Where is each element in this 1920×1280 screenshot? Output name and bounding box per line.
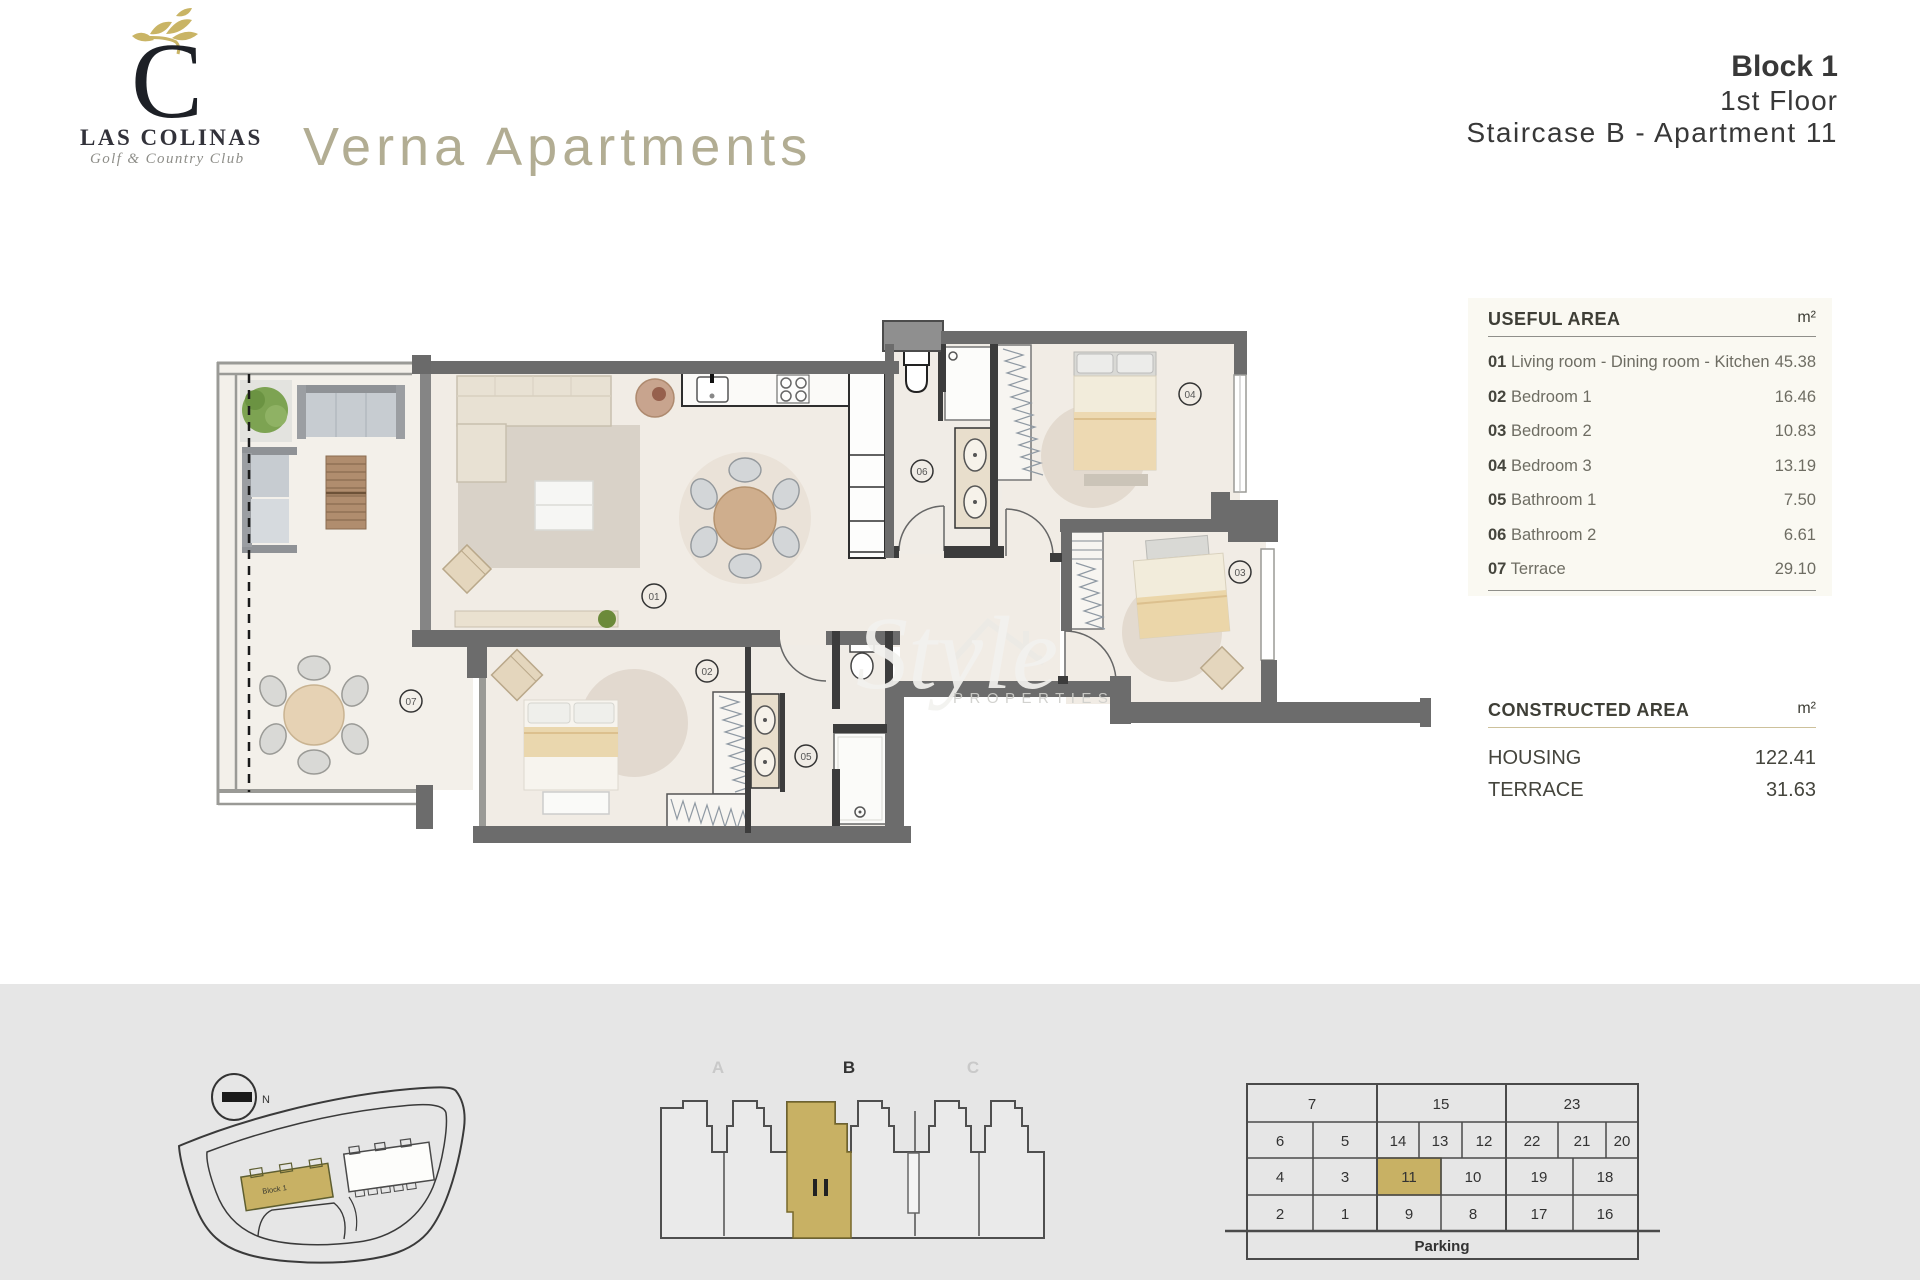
svg-text:8: 8 bbox=[1469, 1206, 1477, 1223]
svg-text:C: C bbox=[967, 1058, 979, 1077]
svg-text:01: 01 bbox=[648, 592, 660, 603]
svg-text:16: 16 bbox=[1597, 1206, 1614, 1223]
svg-text:5: 5 bbox=[1341, 1133, 1349, 1150]
svg-text:19: 19 bbox=[1531, 1169, 1548, 1186]
svg-text:Parking: Parking bbox=[1414, 1238, 1469, 1255]
svg-text:A: A bbox=[712, 1058, 724, 1077]
svg-text:18: 18 bbox=[1597, 1169, 1614, 1186]
svg-text:6: 6 bbox=[1276, 1133, 1284, 1150]
svg-text:04: 04 bbox=[1184, 390, 1196, 401]
svg-text:17: 17 bbox=[1531, 1206, 1548, 1223]
svg-text:20: 20 bbox=[1614, 1133, 1631, 1150]
svg-text:13: 13 bbox=[1432, 1133, 1449, 1150]
svg-text:15: 15 bbox=[1433, 1096, 1450, 1113]
svg-text:4: 4 bbox=[1276, 1169, 1284, 1186]
svg-text:10: 10 bbox=[1465, 1169, 1482, 1186]
svg-text:B: B bbox=[843, 1058, 855, 1077]
svg-text:02: 02 bbox=[701, 667, 713, 678]
svg-text:PROPERTIES: PROPERTIES bbox=[953, 690, 1114, 707]
svg-text:06: 06 bbox=[916, 467, 928, 478]
svg-text:21: 21 bbox=[1574, 1133, 1591, 1150]
svg-text:11: 11 bbox=[1401, 1169, 1417, 1186]
svg-text:05: 05 bbox=[800, 752, 812, 763]
svg-text:9: 9 bbox=[1405, 1206, 1413, 1223]
svg-text:N: N bbox=[262, 1094, 270, 1106]
svg-text:7: 7 bbox=[1308, 1096, 1316, 1113]
svg-text:03: 03 bbox=[1234, 568, 1246, 579]
svg-text:07: 07 bbox=[405, 697, 417, 708]
svg-text:12: 12 bbox=[1476, 1133, 1493, 1150]
svg-text:2: 2 bbox=[1276, 1206, 1284, 1223]
svg-text:3: 3 bbox=[1341, 1169, 1349, 1186]
svg-text:22: 22 bbox=[1524, 1133, 1541, 1150]
svg-text:14: 14 bbox=[1390, 1133, 1407, 1150]
svg-text:1: 1 bbox=[1341, 1206, 1349, 1223]
svg-text:23: 23 bbox=[1564, 1096, 1581, 1113]
